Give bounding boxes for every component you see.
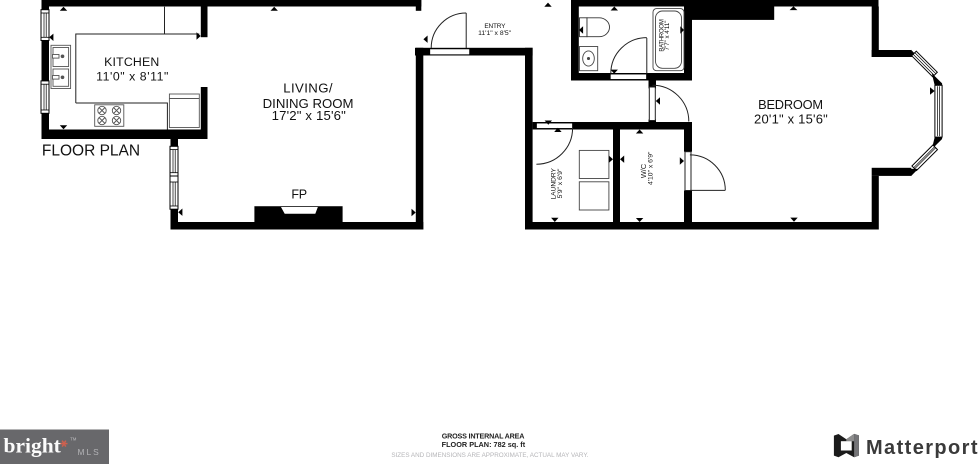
svg-text:Matterport: Matterport <box>866 437 979 459</box>
svg-text:FLOOR PLAN: 782 sq. ft: FLOOR PLAN: 782 sq. ft <box>442 440 526 449</box>
svg-text:11'0" x 8'11": 11'0" x 8'11" <box>96 70 169 84</box>
svg-text:SIZES AND DIMENSIONS ARE APPRO: SIZES AND DIMENSIONS ARE APPROXIMATE, AC… <box>391 452 588 459</box>
svg-text:4'10" x 6'9": 4'10" x 6'9" <box>648 151 655 185</box>
svg-text:FLOOR PLAN: FLOOR PLAN <box>42 142 140 159</box>
svg-text:11'1" x 8'5": 11'1" x 8'5" <box>478 30 512 37</box>
svg-text:20'1" x 15'6": 20'1" x 15'6" <box>754 112 828 127</box>
svg-text:17'2" x 15'6": 17'2" x 15'6" <box>272 108 346 123</box>
svg-text:LIVING/: LIVING/ <box>283 80 333 95</box>
svg-text:TM: TM <box>70 436 77 441</box>
svg-text:BEDROOM: BEDROOM <box>758 97 823 112</box>
svg-text:KITCHEN: KITCHEN <box>104 55 159 69</box>
svg-text:5'9" x 6'9": 5'9" x 6'9" <box>557 168 564 198</box>
svg-text:MLS: MLS <box>78 447 101 457</box>
svg-text:FP: FP <box>291 188 306 202</box>
svg-text:7'7" x 4'11": 7'7" x 4'11" <box>664 20 671 50</box>
svg-text:bright: bright <box>4 434 62 458</box>
